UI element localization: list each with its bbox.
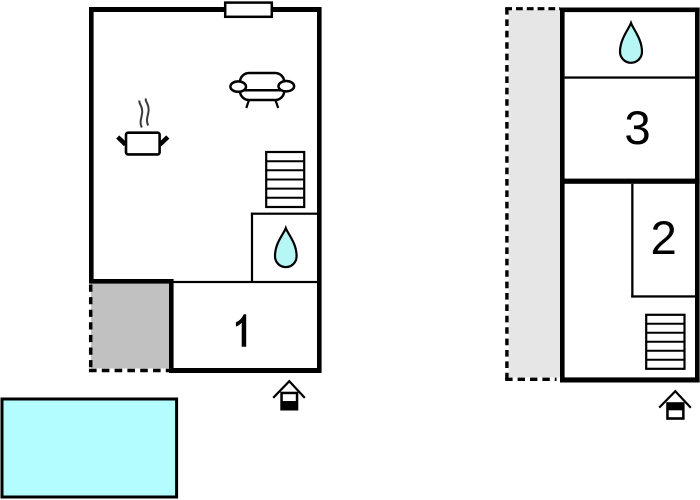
svg-text:3: 3 — [624, 102, 650, 155]
svg-text:2: 2 — [651, 212, 677, 265]
